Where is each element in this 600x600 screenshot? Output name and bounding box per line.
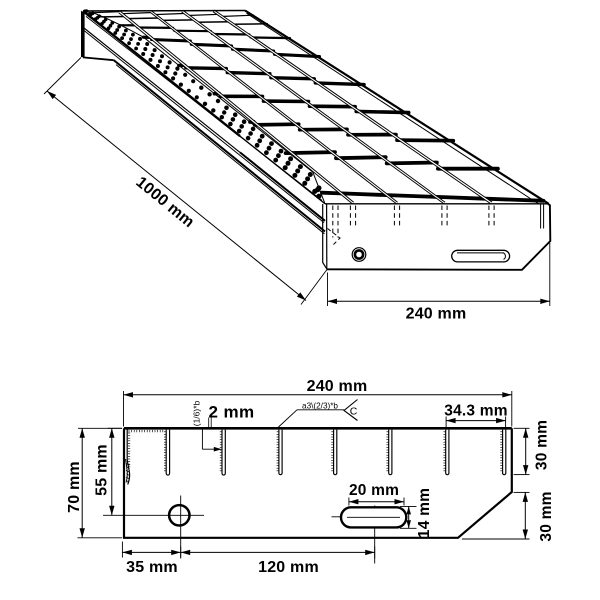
svg-text:35 mm: 35 mm — [126, 559, 178, 576]
svg-text:120 mm: 120 mm — [258, 559, 319, 576]
svg-text:34.3 mm: 34.3 mm — [444, 403, 507, 420]
svg-text:70 mm: 70 mm — [66, 461, 83, 513]
svg-text:240 mm: 240 mm — [307, 378, 368, 395]
svg-text:2 mm: 2 mm — [208, 403, 254, 422]
svg-text:14 mm: 14 mm — [416, 488, 433, 538]
svg-text:55 mm: 55 mm — [94, 444, 111, 496]
svg-text:30 mm: 30 mm — [534, 420, 551, 470]
svg-text:1000 mm: 1000 mm — [132, 174, 197, 232]
svg-text:a3\(2/3)*b: a3\(2/3)*b — [302, 402, 338, 411]
svg-text:20 mm: 20 mm — [349, 482, 399, 499]
svg-text:C: C — [350, 406, 358, 418]
svg-text:(1/6)*b: (1/6)*b — [192, 400, 202, 426]
svg-text:240 mm: 240 mm — [406, 306, 467, 323]
svg-text:30 mm: 30 mm — [538, 491, 555, 541]
